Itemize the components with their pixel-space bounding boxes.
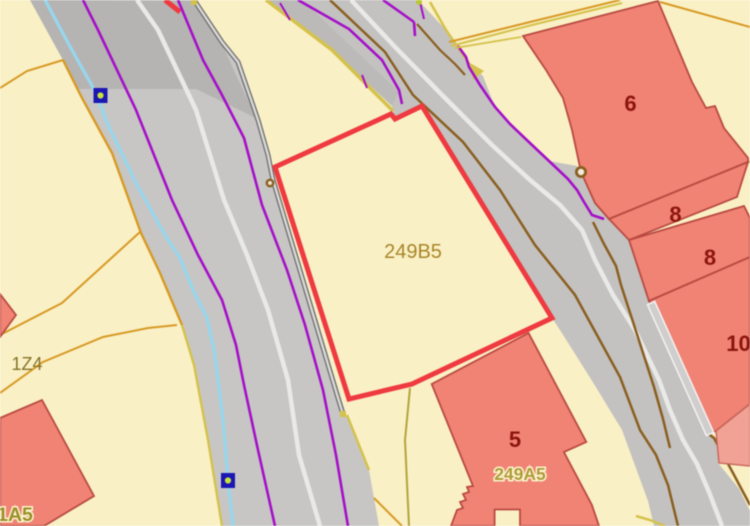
svg-text:249B5: 249B5 — [384, 241, 442, 263]
svg-text:6: 6 — [624, 91, 636, 116]
svg-text:5: 5 — [509, 427, 521, 452]
svg-text:1A5: 1A5 — [0, 504, 33, 526]
svg-text:249A5: 249A5 — [494, 464, 546, 484]
svg-text:8: 8 — [704, 245, 716, 270]
svg-text:1Z4: 1Z4 — [11, 354, 42, 374]
svg-text:8: 8 — [669, 202, 681, 227]
svg-text:10: 10 — [726, 331, 750, 356]
